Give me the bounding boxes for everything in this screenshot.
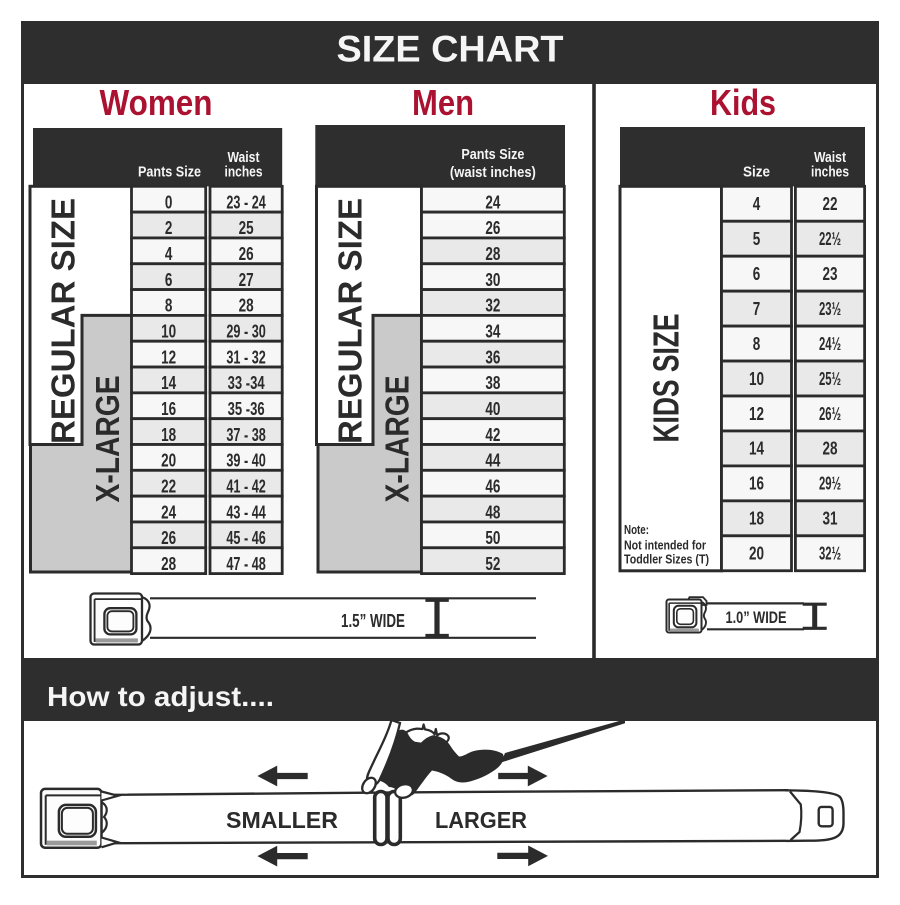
svg-text:28: 28 (823, 439, 838, 459)
svg-text:25: 25 (239, 218, 254, 238)
svg-text:39 - 40: 39 - 40 (226, 451, 265, 471)
svg-text:5: 5 (753, 229, 761, 249)
svg-text:20: 20 (749, 544, 764, 564)
svg-text:28: 28 (485, 244, 500, 264)
svg-text:23½: 23½ (819, 299, 841, 319)
svg-text:12: 12 (749, 404, 764, 424)
svg-text:Women: Women (100, 82, 213, 123)
svg-text:7: 7 (753, 299, 761, 319)
svg-text:4: 4 (165, 244, 173, 264)
svg-text:50: 50 (485, 528, 500, 548)
svg-text:1.0” WIDE: 1.0” WIDE (726, 608, 787, 627)
svg-text:29½: 29½ (819, 474, 841, 494)
svg-text:28: 28 (161, 554, 176, 574)
svg-text:46: 46 (485, 476, 500, 496)
svg-text:10: 10 (749, 369, 764, 389)
svg-text:29 - 30: 29 - 30 (226, 322, 265, 342)
svg-text:(waist inches): (waist inches) (450, 164, 536, 181)
svg-text:30: 30 (485, 270, 500, 290)
svg-text:inches: inches (811, 164, 849, 181)
svg-text:24: 24 (485, 192, 500, 212)
svg-text:38: 38 (485, 373, 500, 393)
svg-text:SMALLER: SMALLER (226, 807, 338, 833)
svg-text:1.5” WIDE: 1.5” WIDE (341, 611, 405, 631)
svg-text:16: 16 (161, 399, 176, 419)
svg-text:36: 36 (485, 347, 500, 367)
svg-text:16: 16 (749, 474, 764, 494)
svg-text:26½: 26½ (819, 404, 841, 424)
svg-text:18: 18 (749, 509, 764, 529)
svg-text:4: 4 (753, 194, 761, 214)
svg-text:22½: 22½ (819, 229, 841, 249)
svg-text:23 - 24: 23 - 24 (226, 192, 265, 212)
svg-text:14: 14 (749, 439, 764, 459)
svg-text:20: 20 (161, 451, 176, 471)
svg-text:Size: Size (743, 164, 770, 181)
svg-text:44: 44 (485, 451, 500, 471)
svg-text:REGULAR SIZE: REGULAR SIZE (45, 198, 82, 444)
svg-text:47 - 48: 47 - 48 (226, 554, 265, 574)
svg-text:6: 6 (165, 270, 173, 290)
svg-text:52: 52 (485, 554, 500, 574)
svg-text:8: 8 (753, 334, 761, 354)
svg-text:How to adjust....: How to adjust.... (47, 681, 274, 712)
svg-text:10: 10 (161, 322, 176, 342)
svg-text:22: 22 (823, 194, 838, 214)
svg-text:31 - 32: 31 - 32 (226, 347, 265, 367)
svg-text:45 - 46: 45 - 46 (226, 528, 265, 548)
svg-text:X-LARGE: X-LARGE (89, 376, 126, 503)
svg-text:0: 0 (165, 192, 173, 212)
svg-text:32: 32 (485, 296, 500, 316)
svg-text:26: 26 (239, 244, 254, 264)
svg-text:27: 27 (239, 270, 254, 290)
svg-text:42: 42 (485, 425, 500, 445)
svg-text:26: 26 (161, 528, 176, 548)
svg-text:31: 31 (823, 509, 838, 529)
svg-text:KIDS SIZE: KIDS SIZE (646, 314, 687, 443)
svg-text:28: 28 (239, 296, 254, 316)
svg-text:23: 23 (823, 264, 838, 284)
svg-text:37 - 38: 37 - 38 (226, 425, 265, 445)
svg-text:41 - 42: 41 - 42 (226, 476, 265, 496)
svg-text:2: 2 (165, 218, 173, 238)
svg-text:REGULAR SIZE: REGULAR SIZE (332, 198, 369, 444)
svg-text:18: 18 (161, 425, 176, 445)
svg-text:22: 22 (161, 476, 176, 496)
svg-text:LARGER: LARGER (435, 807, 527, 833)
svg-text:Toddler Sizes (T): Toddler Sizes (T) (624, 552, 709, 567)
svg-text:40: 40 (485, 399, 500, 419)
svg-text:Men: Men (412, 82, 474, 123)
svg-text:12: 12 (161, 347, 176, 367)
svg-text:Pants Size: Pants Size (138, 164, 201, 181)
svg-text:X-LARGE: X-LARGE (379, 376, 416, 503)
svg-text:24: 24 (161, 502, 176, 522)
svg-text:33 -34: 33 -34 (228, 373, 265, 393)
svg-text:43 - 44: 43 - 44 (226, 502, 265, 522)
svg-text:8: 8 (165, 296, 173, 316)
svg-text:Note:: Note: (624, 522, 649, 537)
svg-text:48: 48 (485, 502, 500, 522)
svg-text:34: 34 (485, 322, 500, 342)
svg-text:Pants Size: Pants Size (461, 146, 524, 163)
svg-text:inches: inches (225, 164, 263, 181)
svg-text:Not intended for: Not intended for (624, 538, 706, 553)
svg-text:25½: 25½ (819, 369, 841, 389)
svg-text:24½: 24½ (819, 334, 841, 354)
svg-text:SIZE CHART: SIZE CHART (337, 29, 564, 70)
svg-text:14: 14 (161, 373, 176, 393)
svg-text:26: 26 (485, 218, 500, 238)
svg-text:35 -36: 35 -36 (228, 399, 265, 419)
svg-text:Kids: Kids (710, 82, 776, 123)
svg-text:6: 6 (753, 264, 761, 284)
svg-text:32½: 32½ (819, 544, 841, 564)
